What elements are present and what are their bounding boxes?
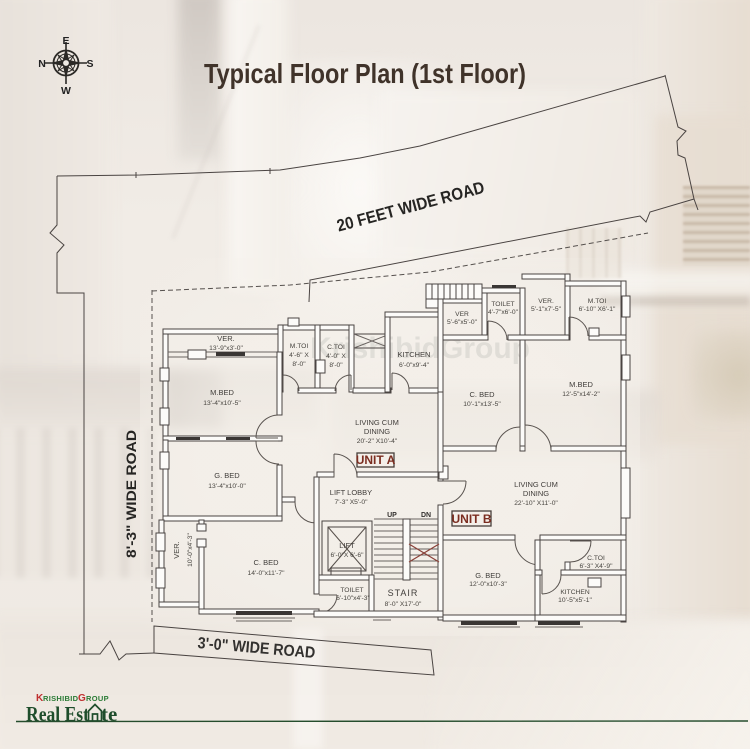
svg-text:te: te <box>101 702 117 726</box>
svg-text:Real Est: Real Est <box>26 702 89 726</box>
